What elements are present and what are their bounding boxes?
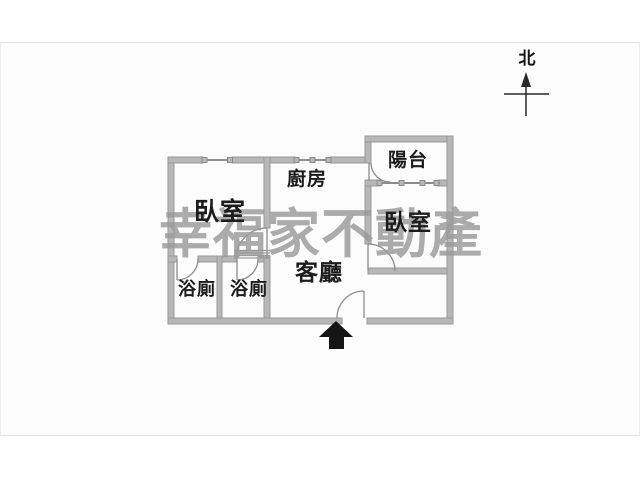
wall-bedroom-right-bottom	[368, 268, 447, 274]
door-entrance	[337, 291, 364, 318]
room-label-bathroom-2: 浴廁	[227, 280, 271, 300]
room-label-balcony: 陽台	[385, 150, 431, 171]
room-label-bedroom-left: 臥室	[188, 198, 252, 225]
window-bedroom-left	[202, 158, 233, 163]
wall-balcony-top	[365, 136, 453, 142]
page: 幸福家不動產 臥室 廚房 陽台 臥室 客廳 浴廁 浴廁 北	[0, 0, 640, 480]
compass-north-label: 北	[509, 50, 545, 69]
room-label-bedroom-right: 臥室	[382, 211, 434, 236]
wall-bottom-a	[168, 318, 342, 324]
north-compass-icon	[504, 72, 549, 116]
wall-balcony-left-stub	[365, 142, 371, 163]
room-label-living-room: 客廳	[292, 261, 346, 286]
entrance-arrow-icon	[319, 321, 353, 349]
wall-top-a	[168, 157, 203, 163]
room-label-kitchen: 廚房	[284, 169, 330, 190]
window-kitchen	[294, 158, 331, 163]
wall-bottom-b	[367, 318, 453, 324]
room-label-bathroom-1: 浴廁	[175, 280, 219, 300]
